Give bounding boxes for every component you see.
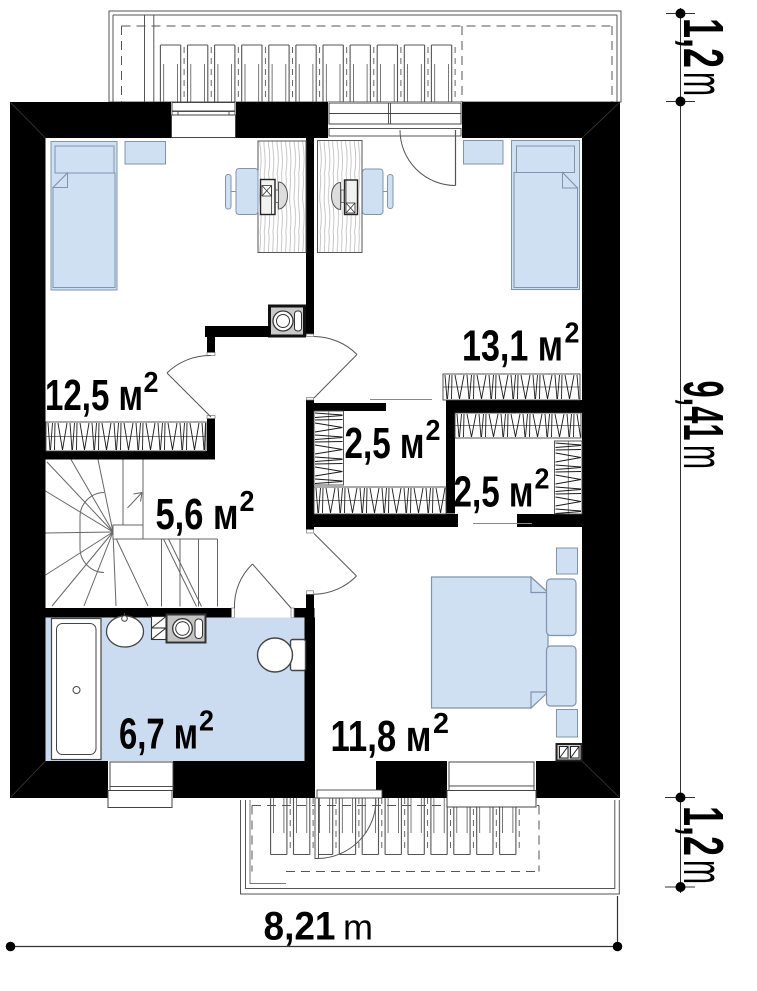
svg-text:11,8 м: 11,8 м [331,712,432,761]
svg-text:m: m [671,445,735,469]
svg-text:2: 2 [426,415,441,447]
svg-text:2,5 м: 2,5 м [454,468,534,517]
svg-text:2: 2 [433,708,449,740]
svg-text:1,2: 1,2 [671,18,735,68]
svg-text:13,1 м: 13,1 м [462,322,563,371]
svg-text:2: 2 [240,486,255,518]
svg-text:6,7 м: 6,7 м [119,710,198,759]
svg-text:m: m [671,72,735,96]
svg-text:m: m [671,860,735,884]
svg-text:1,2: 1,2 [671,806,735,856]
svg-text:9,41: 9,41 [671,381,735,441]
svg-text:2: 2 [535,464,550,496]
svg-text:8,21: 8,21 [264,905,336,949]
svg-text:2: 2 [199,706,214,738]
svg-text:m: m [343,907,373,948]
svg-text:12,5 м: 12,5 м [45,371,143,420]
svg-text:2: 2 [144,367,159,399]
svg-text:2: 2 [565,318,580,350]
svg-text:5,6 м: 5,6 м [156,490,239,539]
svg-text:2,5 м: 2,5 м [345,419,425,468]
